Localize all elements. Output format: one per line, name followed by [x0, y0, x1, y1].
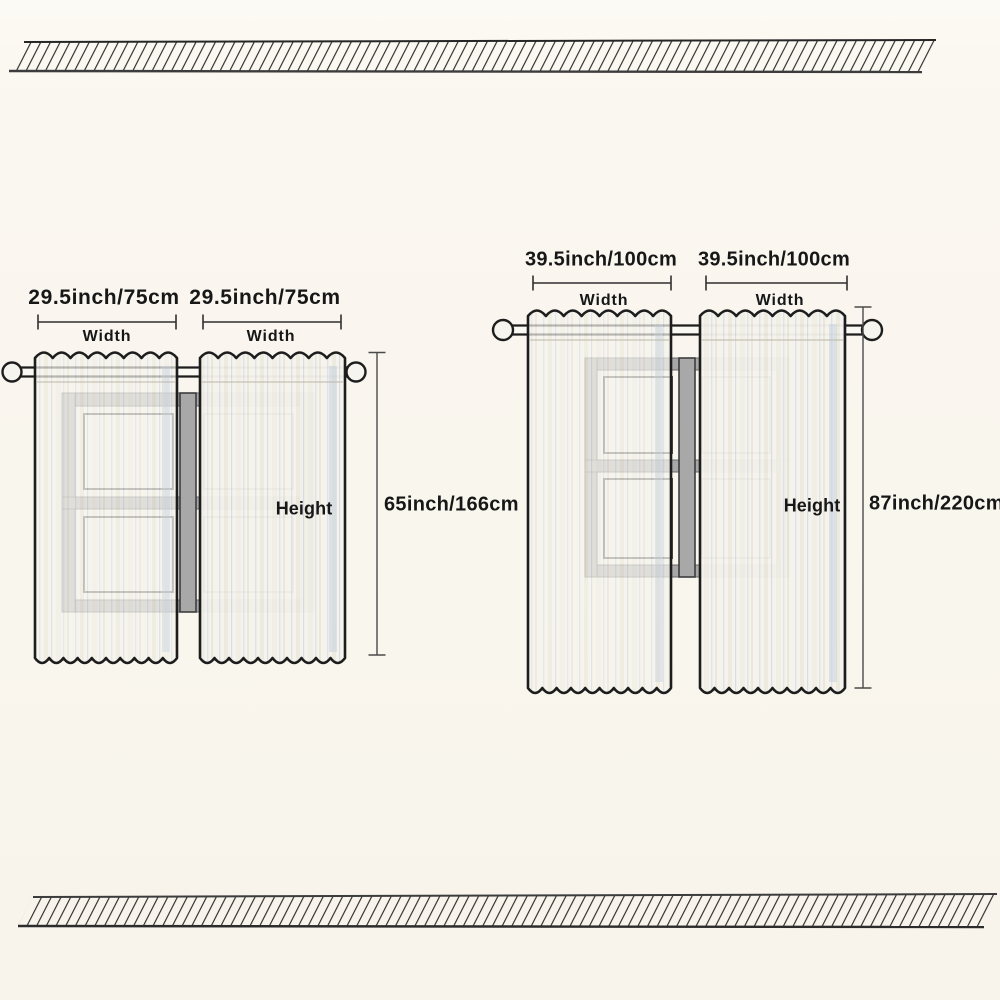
- small-rod-finial-left: [3, 363, 22, 382]
- large-width-dimension-right: [706, 276, 847, 291]
- curtain-size-diagram: 29.5inch/75cm 29.5inch/75cm Width Width …: [0, 0, 1000, 1000]
- large-rod-finial-left: [493, 320, 513, 340]
- small-left-width-caption: Width: [83, 328, 132, 346]
- small-height-value: 65inch/166cm: [384, 494, 519, 517]
- bottom-hatch-band: [18, 894, 997, 927]
- large-left-curtain-panel: [528, 311, 671, 694]
- small-right-width-caption: Width: [247, 328, 296, 346]
- small-height-caption: Height: [276, 499, 333, 520]
- small-right-width-value: 29.5inch/75cm: [189, 286, 340, 310]
- large-right-width-caption: Width: [756, 292, 805, 310]
- small-size-diagram: [3, 315, 386, 664]
- large-right-width-value: 39.5inch/100cm: [698, 249, 850, 272]
- top-hatch-band: [9, 40, 936, 72]
- large-height-caption: Height: [784, 496, 841, 517]
- small-left-curtain-panel: [35, 353, 177, 664]
- small-left-width-value: 29.5inch/75cm: [28, 286, 179, 310]
- large-left-width-caption: Width: [580, 292, 629, 310]
- large-size-diagram: [493, 276, 882, 694]
- large-width-dimension-left: [533, 276, 671, 291]
- large-left-width-value: 39.5inch/100cm: [525, 249, 677, 272]
- small-rod-finial-right: [347, 363, 366, 382]
- large-rod-finial-right: [862, 320, 882, 340]
- large-height-value: 87inch/220cm: [869, 493, 1000, 516]
- small-height-dimension: [369, 353, 386, 656]
